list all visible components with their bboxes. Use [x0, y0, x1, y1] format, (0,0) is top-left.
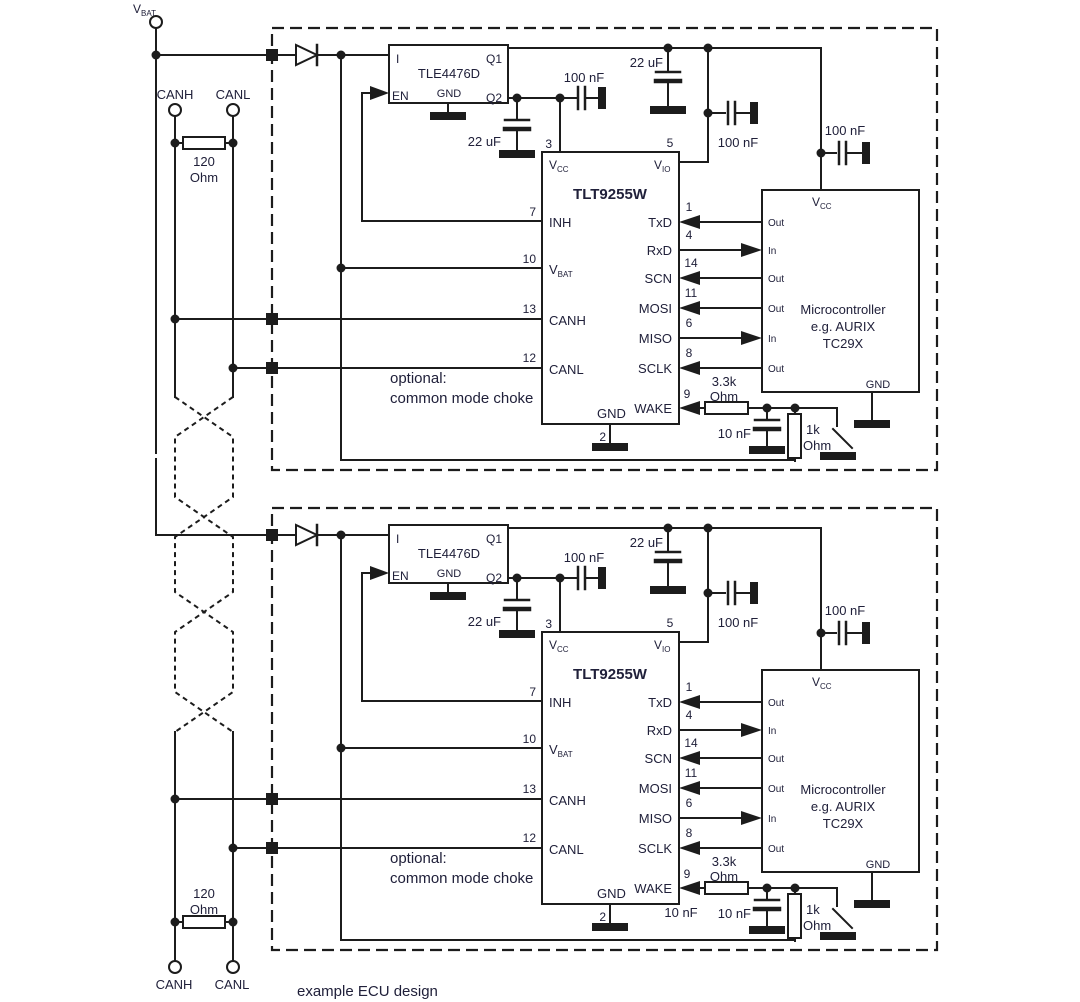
- canh-terminal-bottom: [169, 961, 181, 973]
- transceiver-pin-txd: TxD: [648, 695, 672, 710]
- canl-label-bottom: CANL: [215, 977, 250, 992]
- regulator-pin-q1: Q1: [486, 532, 502, 546]
- vbat-label: VBAT: [133, 2, 156, 18]
- regulator-pin-gnd: GND: [437, 568, 462, 580]
- note-choke: common mode choke: [390, 390, 533, 407]
- canl-terminal-bottom: [227, 961, 239, 973]
- transceiver-pin-canl: CANL: [549, 842, 584, 857]
- cap-label-100nf-mcu: 100 nF: [825, 603, 866, 618]
- mcu-pin-gnd: GND: [866, 379, 891, 391]
- mcu-pin-in1: In: [768, 726, 776, 737]
- pin-num-8: 8: [686, 346, 693, 360]
- pin-num-13: 13: [523, 782, 537, 796]
- pin-num-11: 11: [685, 766, 698, 780]
- ecu-schematic: TLE4476D I EN GND Q1 Q2 22 uF 100 nF 22 …: [0, 0, 1080, 1002]
- pin-num-5: 5: [667, 616, 674, 630]
- cap-label-100nf-vio: 100 nF: [718, 615, 759, 630]
- regulator-pin-q2: Q2: [486, 91, 502, 105]
- cap-label-10nf-wake: 10 nF: [718, 426, 751, 441]
- mcu-name-line1: Microcontroller: [800, 782, 886, 797]
- regulator-pin-en: EN: [392, 569, 409, 583]
- cap-label-100nf-mcu: 100 nF: [825, 123, 866, 138]
- pin-num-7: 7: [529, 205, 536, 219]
- transceiver-pin-rxd: RxD: [647, 723, 672, 738]
- mcu-pin-out3: Out: [768, 304, 784, 315]
- canh-terminal-top: [169, 104, 181, 116]
- pin-num-4: 4: [686, 708, 693, 722]
- canh-label-top: CANH: [157, 87, 194, 102]
- termination-unit-top: Ohm: [190, 170, 218, 185]
- pin-num-2: 2: [599, 430, 606, 444]
- mcu-name-line3: TC29X: [823, 336, 864, 351]
- pin-num-9: 9: [684, 387, 691, 401]
- resistor-3k3-value: 3.3k: [712, 374, 737, 389]
- mcu-pin-gnd: GND: [866, 859, 891, 871]
- transceiver-pin-scn: SCN: [645, 751, 672, 766]
- pin-num-7: 7: [529, 685, 536, 699]
- mcu-pin-out2: Out: [768, 754, 784, 765]
- pin-num-12: 12: [523, 351, 537, 365]
- regulator-name: TLE4476D: [418, 546, 480, 561]
- mcu-pin-out4: Out: [768, 844, 784, 855]
- transceiver-pin-canl: CANL: [549, 362, 584, 377]
- transceiver-pin-canh: CANH: [549, 793, 586, 808]
- pin-num-10: 10: [523, 252, 537, 266]
- cap-label-100nf-vcc: 100 nF: [564, 550, 605, 565]
- resistor-3k3-unit: Ohm: [710, 869, 738, 884]
- note-optional: optional:: [390, 370, 447, 387]
- regulator-pin-i: I: [396, 52, 399, 66]
- transceiver-pin-rxd: RxD: [647, 243, 672, 258]
- transceiver-pin-inh: INH: [549, 215, 571, 230]
- pin-num-3: 3: [545, 137, 552, 151]
- cap-label-100nf-vcc: 100 nF: [564, 70, 605, 85]
- transceiver-pin-miso: MISO: [639, 331, 672, 346]
- cap-label-10nf-duplicate: 10 nF: [664, 905, 697, 920]
- twisted-pair-wire: [175, 397, 233, 732]
- transceiver-pin-gnd: GND: [597, 406, 626, 421]
- resistor-1k-value: 1k: [806, 422, 820, 437]
- transceiver-pin-inh: INH: [549, 695, 571, 710]
- regulator-pin-q1: Q1: [486, 52, 502, 66]
- transceiver-pin-gnd: GND: [597, 886, 626, 901]
- transceiver-name: TLT9255W: [573, 666, 648, 683]
- pin-num-1: 1: [686, 680, 693, 694]
- transceiver-pin-mosi: MOSI: [639, 781, 672, 796]
- schematic-page: TLE4476D I EN GND Q1 Q2 22 uF 100 nF 22 …: [0, 0, 1080, 1002]
- transceiver-name: TLT9255W: [573, 186, 648, 203]
- transceiver-pin-mosi: MOSI: [639, 301, 672, 316]
- pin-num-2: 2: [599, 910, 606, 924]
- cap-label-100nf-vio: 100 nF: [718, 135, 759, 150]
- note-choke: common mode choke: [390, 870, 533, 887]
- resistor-3k3-value: 3.3k: [712, 854, 737, 869]
- pin-num-8: 8: [686, 826, 693, 840]
- ecu1-hardware: [266, 28, 937, 470]
- pin-num-14: 14: [684, 256, 698, 270]
- termination-value-bottom: 120: [193, 886, 215, 901]
- transceiver-pin-sclk: SCLK: [638, 361, 672, 376]
- mcu-name-line2: e.g. AURIX: [811, 799, 876, 814]
- mcu-pin-out1: Out: [768, 218, 784, 229]
- regulator-pin-i: I: [396, 532, 399, 546]
- termination-value-top: 120: [193, 154, 215, 169]
- pin-num-13: 13: [523, 302, 537, 316]
- pin-num-1: 1: [686, 200, 693, 214]
- regulator-pin-gnd: GND: [437, 88, 462, 100]
- cap-label-22uf-reg: 22 uF: [468, 134, 501, 149]
- pin-num-14: 14: [684, 736, 698, 750]
- resistor-3k3-unit: Ohm: [710, 389, 738, 404]
- regulator-pin-q2: Q2: [486, 571, 502, 585]
- resistor-1k-value: 1k: [806, 902, 820, 917]
- transceiver-pin-txd: TxD: [648, 215, 672, 230]
- transceiver-pin-canh: CANH: [549, 313, 586, 328]
- cap-label-10nf-wake: 10 nF: [718, 906, 751, 921]
- pin-num-10: 10: [523, 732, 537, 746]
- termination-resistor-top: [183, 137, 225, 149]
- transceiver-pin-wake: WAKE: [634, 401, 672, 416]
- mcu-name-line3: TC29X: [823, 816, 864, 831]
- transceiver-pin-wake: WAKE: [634, 881, 672, 896]
- twisted-pair-wire: [175, 397, 233, 732]
- pin-num-3: 3: [545, 617, 552, 631]
- mcu-pin-out4: Out: [768, 364, 784, 375]
- termination-resistor-bottom: [183, 916, 225, 928]
- transceiver-pin-sclk: SCLK: [638, 841, 672, 856]
- mcu-name-line2: e.g. AURIX: [811, 319, 876, 334]
- pin-num-12: 12: [523, 831, 537, 845]
- note-optional: optional:: [390, 850, 447, 867]
- pin-num-4: 4: [686, 228, 693, 242]
- canl-terminal-top: [227, 104, 239, 116]
- mcu-name-line1: Microcontroller: [800, 302, 886, 317]
- cap-label-22uf-vio: 22 uF: [630, 55, 663, 70]
- canl-label-top: CANL: [216, 87, 251, 102]
- pin-num-9: 9: [684, 867, 691, 881]
- regulator-name: TLE4476D: [418, 66, 480, 81]
- canh-label-bottom: CANH: [156, 977, 193, 992]
- transceiver-pin-miso: MISO: [639, 811, 672, 826]
- diagram-caption: example ECU design: [297, 983, 438, 1000]
- regulator-pin-en: EN: [392, 89, 409, 103]
- pin-num-6: 6: [686, 316, 693, 330]
- pin-num-6: 6: [686, 796, 693, 810]
- cap-label-22uf-vio: 22 uF: [630, 535, 663, 550]
- ecu2-hardware: [266, 508, 937, 950]
- mcu-pin-in2: In: [768, 334, 776, 345]
- mcu-pin-out2: Out: [768, 274, 784, 285]
- pin-num-11: 11: [685, 286, 698, 300]
- mcu-pin-in1: In: [768, 246, 776, 257]
- resistor-1k-unit: Ohm: [803, 918, 831, 933]
- mcu-pin-out3: Out: [768, 784, 784, 795]
- cap-label-22uf-reg: 22 uF: [468, 614, 501, 629]
- resistor-1k-unit: Ohm: [803, 438, 831, 453]
- transceiver-pin-scn: SCN: [645, 271, 672, 286]
- mcu-pin-out1: Out: [768, 698, 784, 709]
- mcu-pin-in2: In: [768, 814, 776, 825]
- pin-num-5: 5: [667, 136, 674, 150]
- termination-unit-bottom: Ohm: [190, 902, 218, 917]
